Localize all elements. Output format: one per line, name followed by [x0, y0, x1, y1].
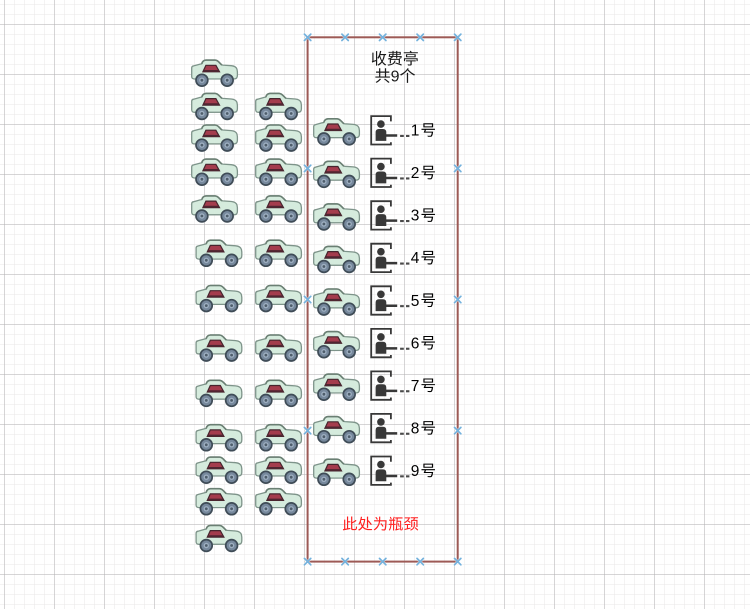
- svg-text:9: 9: [411, 463, 420, 480]
- svg-text:6: 6: [411, 335, 420, 352]
- svg-text:7: 7: [411, 378, 420, 395]
- svg-text:2: 2: [411, 165, 420, 182]
- svg-text:1: 1: [411, 123, 420, 140]
- svg-text:3: 3: [411, 208, 420, 225]
- svg-text:8: 8: [411, 420, 420, 437]
- svg-text:5: 5: [411, 293, 420, 310]
- svg-text:9: 9: [391, 69, 400, 86]
- svg-text:4: 4: [411, 250, 420, 267]
